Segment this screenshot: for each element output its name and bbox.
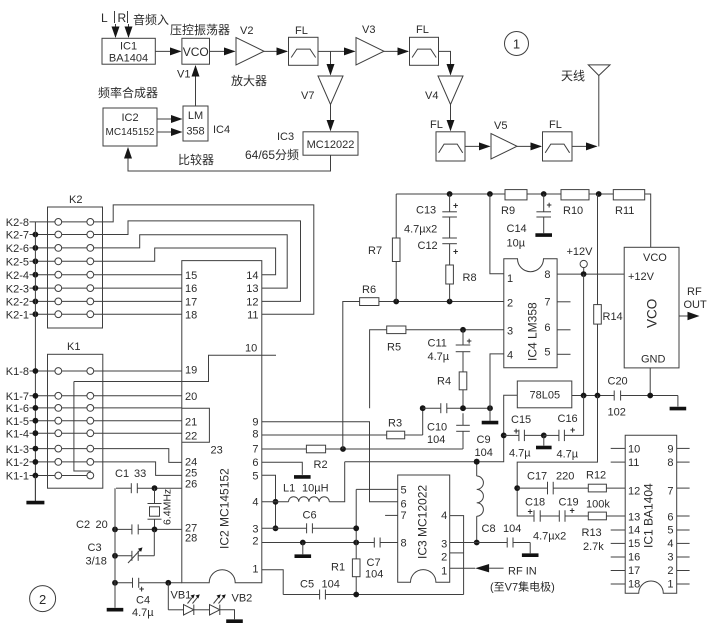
svg-text:104: 104 [475, 447, 493, 459]
svg-text:3: 3 [252, 523, 258, 535]
svg-text:K2: K2 [69, 194, 82, 206]
svg-text:18: 18 [628, 579, 640, 591]
svg-text:K1-5: K1-5 [6, 416, 29, 428]
svg-text:V4: V4 [425, 90, 438, 102]
svg-text:7: 7 [401, 510, 407, 522]
svg-text:6: 6 [252, 457, 258, 469]
svg-text:3: 3 [441, 539, 447, 551]
svg-text:358: 358 [186, 126, 204, 138]
svg-text:V3: V3 [362, 24, 375, 36]
svg-text:天线: 天线 [561, 69, 585, 83]
svg-text:5: 5 [252, 470, 258, 482]
svg-text:4: 4 [507, 350, 513, 362]
svg-text:12: 12 [246, 297, 258, 309]
svg-text:9: 9 [667, 444, 673, 456]
svg-text:C16: C16 [558, 413, 578, 425]
svg-text:1: 1 [667, 579, 673, 591]
svg-text:28: 28 [185, 533, 197, 545]
svg-text:C5: C5 [300, 579, 314, 591]
svg-text:+: + [514, 426, 519, 436]
svg-text:C3: C3 [88, 542, 102, 554]
svg-text:C12: C12 [418, 240, 438, 252]
svg-text:MC145152: MC145152 [106, 127, 155, 138]
svg-text:64/65分频: 64/65分频 [245, 148, 299, 162]
svg-text:C7: C7 [367, 557, 381, 569]
svg-text:K1-2: K1-2 [6, 457, 29, 469]
svg-text:VCO: VCO [643, 252, 667, 264]
svg-text:104: 104 [503, 523, 521, 535]
svg-text:K1-3: K1-3 [6, 444, 29, 456]
svg-text:FL: FL [295, 25, 308, 37]
svg-text:RF IN: RF IN [508, 566, 537, 578]
svg-text:4.7µ: 4.7µ [557, 449, 579, 461]
svg-text:R: R [118, 11, 127, 25]
svg-text:13: 13 [628, 512, 640, 524]
svg-text:V2: V2 [240, 25, 253, 37]
svg-text:19: 19 [185, 365, 197, 377]
svg-text:R9: R9 [501, 205, 515, 217]
svg-text:2: 2 [667, 565, 673, 577]
svg-text:压控振荡器: 压控振荡器 [170, 23, 230, 37]
svg-text:22: 22 [185, 430, 197, 442]
svg-text:8: 8 [544, 269, 550, 281]
svg-text:GND: GND [641, 354, 666, 366]
svg-text:音频入: 音频入 [133, 12, 169, 27]
svg-text:2: 2 [39, 592, 46, 607]
svg-text:R1: R1 [331, 562, 345, 574]
svg-text:2.7k: 2.7k [583, 541, 604, 553]
svg-text:23: 23 [211, 444, 223, 456]
svg-text:R2: R2 [314, 459, 328, 471]
svg-text:K2-4: K2-4 [6, 270, 29, 282]
svg-text:IC2 MC145152: IC2 MC145152 [218, 468, 232, 549]
svg-text:10: 10 [245, 343, 257, 355]
svg-text:26: 26 [185, 478, 197, 490]
svg-text:+: + [453, 247, 458, 257]
svg-text:R7: R7 [368, 245, 382, 257]
svg-text:4.7µ: 4.7µ [509, 448, 531, 460]
svg-text:13: 13 [246, 283, 258, 295]
svg-text:4.7µ: 4.7µ [132, 607, 154, 619]
svg-text:7: 7 [544, 297, 550, 309]
svg-text:9: 9 [252, 417, 258, 429]
svg-text:10: 10 [628, 444, 640, 456]
svg-text:3: 3 [667, 552, 673, 564]
svg-text:RF: RF [687, 286, 702, 298]
svg-text:C17: C17 [527, 471, 547, 483]
svg-text:5: 5 [667, 525, 673, 537]
svg-text:IC2: IC2 [121, 112, 138, 124]
svg-text:R5: R5 [387, 342, 401, 354]
svg-text:MC12022: MC12022 [307, 139, 355, 151]
svg-text:K2-2: K2-2 [6, 297, 29, 309]
svg-text:R3: R3 [388, 418, 402, 430]
svg-text:220: 220 [556, 471, 574, 483]
svg-text:33: 33 [134, 468, 146, 480]
svg-text:4: 4 [441, 510, 447, 522]
svg-text:IC4: IC4 [213, 124, 230, 136]
svg-text:8: 8 [252, 429, 258, 441]
svg-text:C2: C2 [76, 519, 90, 531]
svg-text:20: 20 [185, 391, 197, 403]
svg-text:104: 104 [427, 434, 445, 446]
svg-text:8: 8 [401, 538, 407, 550]
svg-text:L: L [101, 11, 108, 25]
svg-text:4.7µx2: 4.7µx2 [404, 224, 437, 236]
svg-text:2: 2 [252, 536, 258, 548]
svg-text:5: 5 [544, 347, 550, 359]
svg-text:+: + [453, 201, 458, 211]
svg-text:17: 17 [185, 297, 197, 309]
svg-text:1: 1 [507, 273, 513, 285]
svg-text:IC1: IC1 [120, 41, 137, 53]
svg-text:18: 18 [185, 309, 197, 321]
svg-text:1: 1 [513, 37, 520, 52]
svg-text:5: 5 [401, 485, 407, 497]
svg-text:+: + [547, 200, 552, 210]
svg-text:C9: C9 [477, 434, 491, 446]
svg-text:L1: L1 [283, 483, 295, 495]
svg-text:C8: C8 [482, 523, 496, 535]
svg-text:K1-6: K1-6 [6, 403, 29, 415]
svg-text:C14: C14 [507, 223, 527, 235]
svg-text:7: 7 [667, 486, 673, 498]
svg-text:K1-8: K1-8 [6, 366, 29, 378]
svg-text:放大器: 放大器 [231, 73, 267, 88]
svg-text:(至V7集电极): (至V7集电极) [490, 580, 555, 594]
svg-text:C6: C6 [303, 510, 317, 522]
svg-text:R8: R8 [463, 272, 477, 284]
svg-text:C11: C11 [428, 338, 447, 350]
svg-text:频率合成器: 频率合成器 [98, 85, 158, 100]
svg-text:12: 12 [628, 486, 640, 498]
svg-text:6: 6 [401, 499, 407, 511]
svg-text:IC4 LM358: IC4 LM358 [526, 302, 540, 361]
svg-text:14: 14 [246, 270, 258, 282]
svg-text:104: 104 [322, 579, 340, 591]
svg-text:102: 102 [608, 407, 626, 419]
svg-text:+: + [570, 506, 575, 516]
svg-text:3/18: 3/18 [86, 556, 107, 568]
svg-text:20: 20 [96, 519, 108, 531]
svg-text:K2-3: K2-3 [6, 283, 29, 295]
svg-text:4: 4 [667, 538, 673, 550]
svg-text:R13: R13 [582, 527, 602, 539]
svg-text:K1-1: K1-1 [6, 471, 29, 483]
svg-text:+: + [528, 507, 533, 517]
svg-text:4: 4 [252, 497, 258, 509]
svg-text:R14: R14 [603, 311, 623, 323]
svg-text:V1: V1 [177, 69, 190, 81]
svg-text:K2-1: K2-1 [6, 309, 29, 321]
svg-text:8: 8 [667, 457, 673, 469]
svg-text:VCO: VCO [183, 45, 209, 59]
svg-text:78L05: 78L05 [530, 390, 561, 402]
svg-text:10µH: 10µH [302, 483, 329, 495]
svg-text:C13: C13 [416, 205, 436, 217]
svg-text:K1-4: K1-4 [6, 428, 29, 440]
svg-text:VCO: VCO [645, 299, 660, 328]
svg-text:FL: FL [430, 119, 443, 131]
svg-text:4.7µ: 4.7µ [428, 351, 450, 363]
svg-text:15: 15 [628, 538, 640, 550]
svg-text:11: 11 [247, 309, 258, 321]
svg-text:+12V: +12V [567, 246, 594, 258]
svg-text:V5: V5 [494, 120, 507, 132]
svg-text:K2-5: K2-5 [6, 257, 29, 269]
svg-text:R12: R12 [586, 470, 606, 482]
svg-text:16: 16 [628, 552, 640, 564]
svg-text:FL: FL [416, 24, 429, 36]
svg-text:+: + [570, 425, 575, 435]
svg-text:IC1 BA1404: IC1 BA1404 [642, 483, 656, 548]
svg-text:IC3: IC3 [277, 131, 294, 143]
svg-text:6.4MHz: 6.4MHz [162, 489, 174, 525]
svg-text:LM: LM [188, 110, 203, 122]
svg-text:FL: FL [549, 119, 562, 131]
svg-text:C4: C4 [136, 595, 150, 607]
svg-text:R6: R6 [362, 284, 376, 296]
svg-text:K1-7: K1-7 [6, 391, 29, 403]
svg-text:1: 1 [252, 563, 258, 575]
svg-text:2: 2 [441, 551, 447, 563]
svg-text:+12V: +12V [628, 271, 655, 283]
svg-text:14: 14 [628, 525, 640, 537]
svg-text:+: + [139, 584, 144, 594]
svg-text:比较器: 比较器 [178, 152, 214, 167]
svg-text:K2-8: K2-8 [6, 217, 29, 229]
svg-text:7: 7 [252, 444, 258, 456]
svg-text:6: 6 [544, 322, 550, 334]
svg-text:104: 104 [365, 569, 383, 581]
svg-text:OUT: OUT [684, 299, 708, 311]
svg-text:K1: K1 [67, 341, 80, 353]
svg-text:C1: C1 [115, 468, 129, 480]
svg-text:C20: C20 [608, 376, 628, 388]
svg-text:BA1404: BA1404 [109, 53, 148, 65]
svg-text:2: 2 [507, 298, 513, 310]
svg-text:17: 17 [628, 565, 640, 577]
svg-text:VB2: VB2 [232, 593, 253, 605]
svg-text:16: 16 [185, 283, 197, 295]
svg-text:VB1: VB1 [171, 590, 192, 602]
svg-text:100k: 100k [586, 499, 610, 511]
svg-text:6: 6 [667, 512, 673, 524]
svg-text:11: 11 [628, 457, 639, 469]
svg-text:3: 3 [507, 326, 513, 338]
svg-text:1: 1 [441, 566, 447, 578]
svg-text:R10: R10 [563, 205, 583, 217]
svg-text:R11: R11 [615, 205, 634, 217]
svg-text:R4: R4 [437, 376, 451, 388]
svg-text:15: 15 [185, 270, 197, 282]
svg-text:10µ: 10µ [507, 238, 526, 250]
svg-text:C15: C15 [511, 414, 531, 426]
svg-text:4.7µx2: 4.7µx2 [533, 531, 566, 543]
svg-text:V7: V7 [301, 90, 314, 102]
svg-text:C10: C10 [427, 422, 447, 434]
svg-text:K2-6: K2-6 [6, 243, 29, 255]
svg-text:21: 21 [185, 417, 197, 429]
svg-text:IC3 MC12022: IC3 MC12022 [416, 485, 430, 559]
svg-text:K2-7: K2-7 [6, 230, 29, 242]
